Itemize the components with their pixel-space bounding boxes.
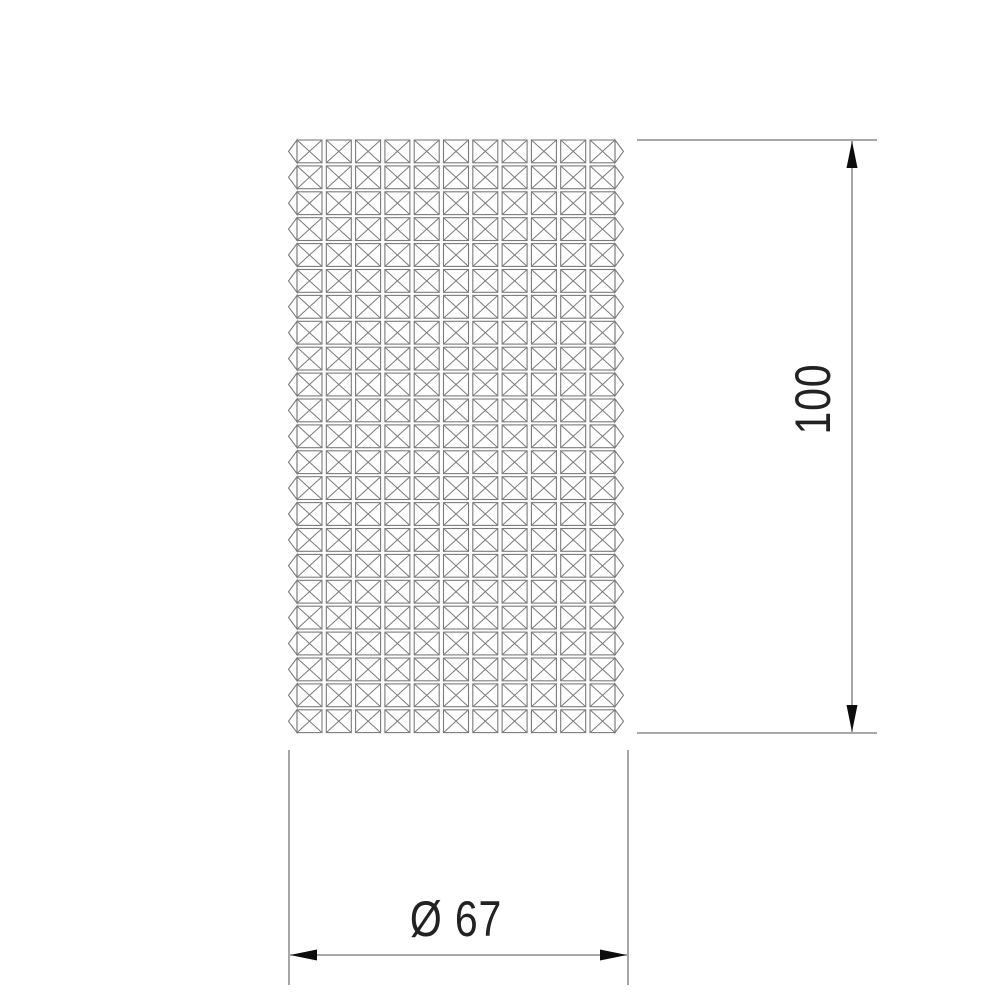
height-dimension-label: 100 bbox=[788, 364, 838, 435]
arrow-down-icon bbox=[847, 705, 858, 732]
dimension-lines bbox=[0, 0, 1000, 1000]
drawing-canvas: 100 Ø 67 bbox=[0, 0, 1000, 1000]
arrow-right-icon bbox=[600, 950, 627, 961]
diameter-dimension-label: Ø 67 bbox=[410, 894, 502, 944]
arrow-up-icon bbox=[847, 141, 858, 168]
arrow-left-icon bbox=[290, 950, 317, 961]
